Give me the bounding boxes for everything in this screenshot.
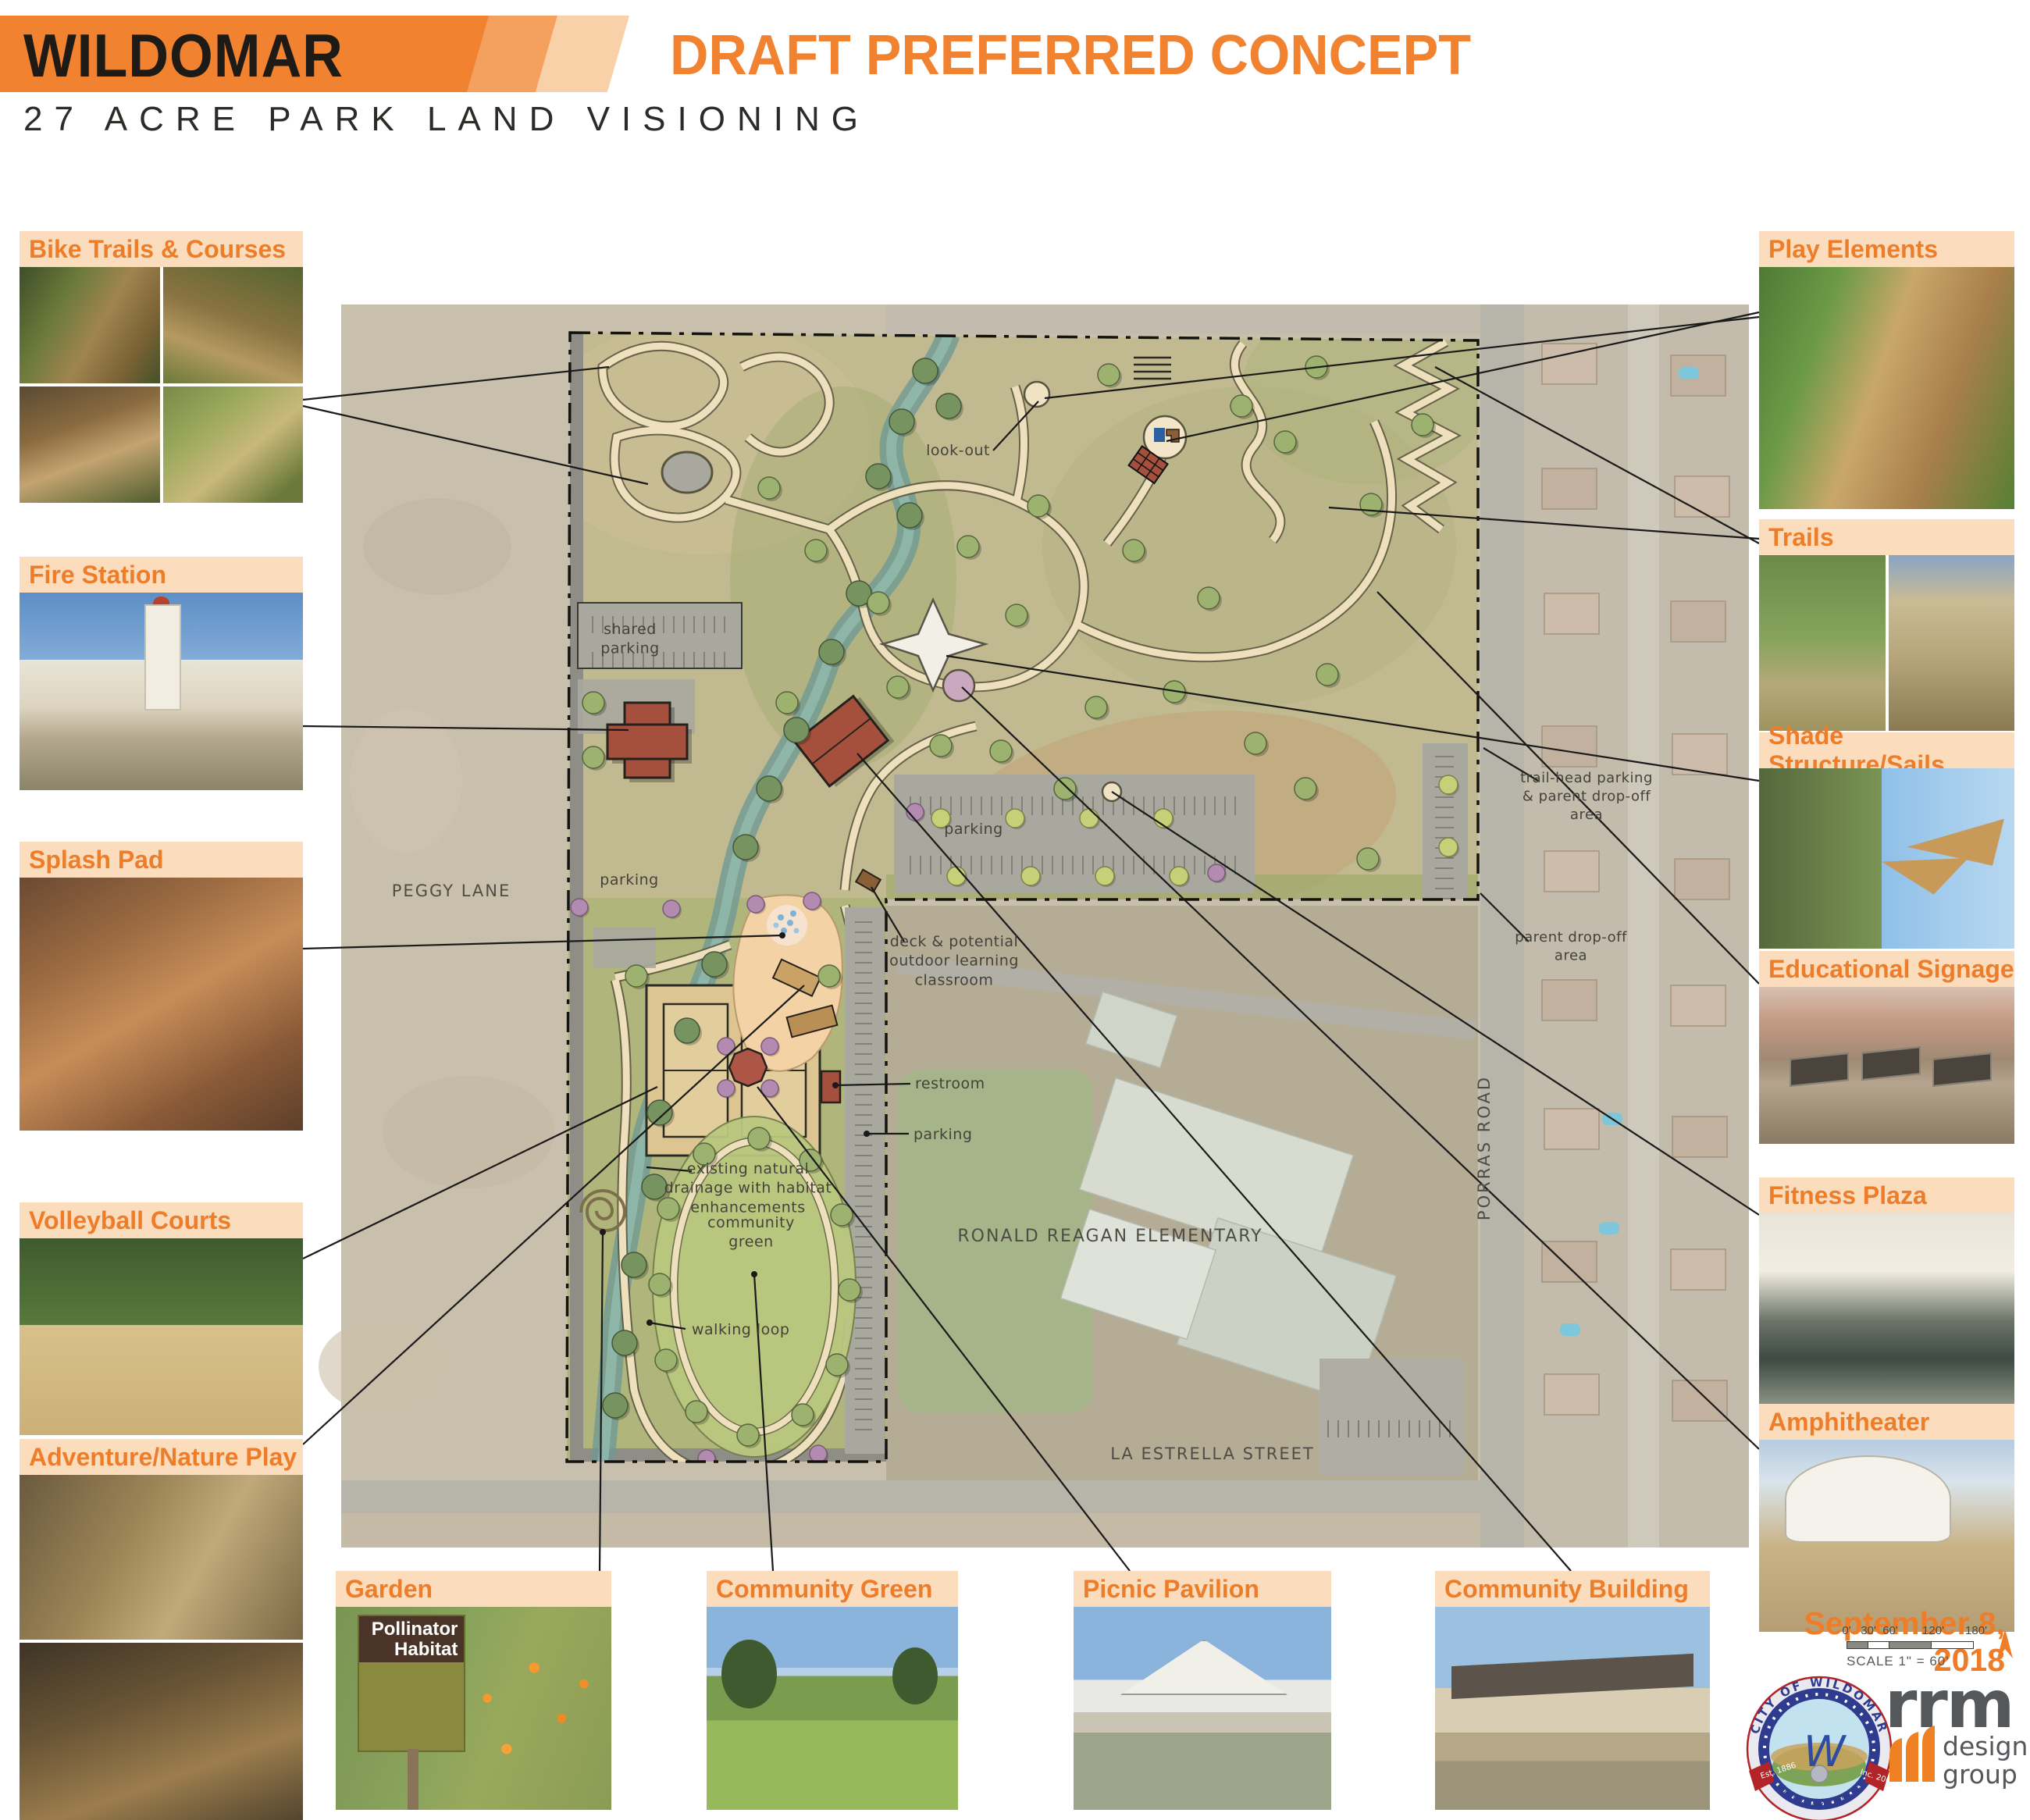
building-roof (1451, 1653, 1693, 1698)
scale-tick-180: 180' (1965, 1624, 1987, 1637)
card-community-building: Community Building (1435, 1571, 1710, 1810)
sign-post (408, 1749, 418, 1810)
pollinator-habitat-sign: Pollinator Habitat (358, 1615, 465, 1752)
scale-tick-0: 0' (1842, 1624, 1850, 1637)
card-label-text: Trails (1768, 523, 1834, 552)
photo-fire-station (20, 593, 303, 790)
rrm-design-text: design (1943, 1731, 2028, 1761)
map-label-look-out: look-out (926, 442, 990, 459)
card-label-text: Garden (345, 1575, 433, 1604)
card-label-volleyball: Volleyball Courts (20, 1202, 303, 1238)
pavilion-roof (1120, 1640, 1287, 1696)
porras-road (1480, 305, 1524, 1548)
card-play-elements: Play Elements (1759, 231, 2014, 509)
photo-trails-1 (1759, 555, 1886, 731)
photo-adventure-play-1 (20, 1475, 303, 1640)
card-amphitheater: Amphitheater (1759, 1404, 2014, 1632)
site-plan-map: look-out sharedparking parking parking P… (0, 0, 2030, 1820)
map-label-parking-center: parking (944, 821, 1003, 838)
card-label-splash-pad: Splash Pad (20, 842, 303, 878)
card-trails: Trails (1759, 519, 2014, 731)
photo-garden: Pollinator Habitat (336, 1607, 611, 1810)
residential-neighborhood (1524, 305, 1749, 1548)
card-label-text: Bike Trails & Courses (29, 235, 286, 264)
pollinator-sign-line1: Pollinator (359, 1619, 458, 1639)
city-of-wildomar-seal-icon: W Est. 1886 Inc. 2008 CITY OF WILDOMAR ~… (1747, 1676, 1896, 1820)
card-label-text: Adventure/Nature Play (29, 1443, 297, 1472)
photo-picnic-pavilion (1074, 1607, 1331, 1810)
amphitheater-node (943, 670, 974, 701)
card-label-text: Picnic Pavilion (1083, 1575, 1259, 1604)
map-label-parking-west: parking (600, 871, 658, 889)
map-label-peggy-lane: PEGGY LANE (392, 882, 511, 900)
card-label-amphitheater: Amphitheater (1759, 1404, 2014, 1440)
la-estrella-street-road (341, 1480, 1524, 1513)
card-picnic-pavilion: Picnic Pavilion (1074, 1571, 1331, 1810)
map-label-restroom: restroom (915, 1075, 985, 1092)
concept-board: WILDOMAR DRAFT PREFERRED CONCEPT 27 ACRE… (0, 0, 2030, 1820)
card-label-text: Amphitheater (1768, 1408, 1929, 1437)
photo-adventure-play-2 (20, 1643, 303, 1820)
card-label-text: Volleyball Courts (29, 1206, 231, 1235)
photo-community-building (1435, 1607, 1710, 1810)
photo-educational-signage (1759, 987, 2014, 1144)
scale-bar (1847, 1641, 1974, 1649)
map-label-school: RONALD REAGAN ELEMENTARY (957, 1227, 1263, 1246)
photo-bike-trails-4 (163, 386, 304, 503)
rrm-group-text: group (1943, 1759, 2018, 1790)
card-label-bike-trails: Bike Trails & Courses (20, 231, 303, 267)
map-label-walking-loop: walking loop (692, 1321, 789, 1338)
card-shade-structure: Shade Structure/Sails (1759, 732, 2014, 949)
card-adventure-play: Adventure/Nature Play (20, 1439, 303, 1820)
school-parcel (886, 906, 1478, 1480)
card-label-educational-signage: Educational Signage (1759, 951, 2014, 987)
amphitheater-shell (1785, 1455, 1951, 1543)
picnic-pavilion-octagon (729, 1049, 767, 1086)
tree-shape (892, 1647, 938, 1704)
pollinator-sign-line2: Habitat (359, 1640, 458, 1659)
photo-bike-trails-3 (20, 386, 160, 503)
card-label-text: Play Elements (1768, 235, 1938, 264)
map-label-parking-south: parking (913, 1126, 972, 1143)
card-label-play-elements: Play Elements (1759, 231, 2014, 267)
signage-panel (1790, 1052, 1849, 1087)
photo-community-green (707, 1607, 958, 1810)
card-label-text: Educational Signage (1768, 955, 2014, 984)
card-label-fitness-plaza: Fitness Plaza (1759, 1177, 2014, 1213)
card-label-adventure-play: Adventure/Nature Play (20, 1439, 303, 1475)
card-splash-pad: Splash Pad (20, 842, 303, 1131)
card-label-picnic-pavilion: Picnic Pavilion (1074, 1571, 1331, 1607)
card-label-community-building: Community Building (1435, 1571, 1710, 1607)
card-label-text: Splash Pad (29, 846, 164, 874)
map-label-la-estrella: LA ESTRELLA STREET (1110, 1444, 1315, 1463)
photo-play-elements (1759, 267, 2014, 509)
card-volleyball: Volleyball Courts (20, 1202, 303, 1435)
card-label-text: Community Green (716, 1575, 932, 1604)
rrm-design-group-logo: rrm design group (1885, 1666, 2028, 1790)
card-label-shade-structure: Shade Structure/Sails (1759, 732, 2014, 768)
card-educational-signage: Educational Signage (1759, 951, 2014, 1144)
card-bike-trails: Bike Trails & Courses (20, 231, 303, 503)
scale-tick-60: 60' (1882, 1624, 1898, 1637)
photo-fitness-plaza (1759, 1213, 2014, 1405)
photo-splash-pad (20, 878, 303, 1131)
signage-panel (1932, 1052, 1992, 1087)
photo-volleyball-courts (20, 1238, 303, 1435)
card-label-text: Community Building (1444, 1575, 1689, 1604)
card-fitness-plaza: Fitness Plaza (1759, 1177, 2014, 1405)
photo-bike-trails-2 (163, 267, 304, 383)
photo-bike-trails-1 (20, 267, 160, 383)
card-label-text: Fitness Plaza (1768, 1181, 1927, 1210)
bike-pond (662, 452, 712, 493)
tree-shape (721, 1640, 777, 1708)
school-parking (1319, 1359, 1464, 1476)
scale-tick-120: 120' (1922, 1624, 1944, 1637)
card-label-garden: Garden (336, 1571, 611, 1607)
scale-tick-30: 30' (1861, 1624, 1876, 1637)
signage-panel (1861, 1046, 1921, 1081)
card-community-green: Community Green (707, 1571, 958, 1810)
card-label-community-green: Community Green (707, 1571, 958, 1607)
photo-shade-structure (1759, 768, 2014, 949)
card-label-trails: Trails (1759, 519, 2014, 555)
photo-trails-2 (1889, 555, 2015, 731)
card-label-text: Fire Station (29, 561, 166, 589)
scale-note: SCALE 1" = 60' (1847, 1654, 1950, 1669)
fire-tower (144, 604, 182, 711)
card-label-fire-station: Fire Station (20, 557, 303, 593)
map-label-porras-road: PORRAS ROAD (1475, 1075, 1494, 1220)
photo-amphitheater (1759, 1440, 2014, 1632)
card-fire-station: Fire Station (20, 557, 303, 790)
card-garden: Garden Pollinator Habitat (336, 1571, 611, 1810)
